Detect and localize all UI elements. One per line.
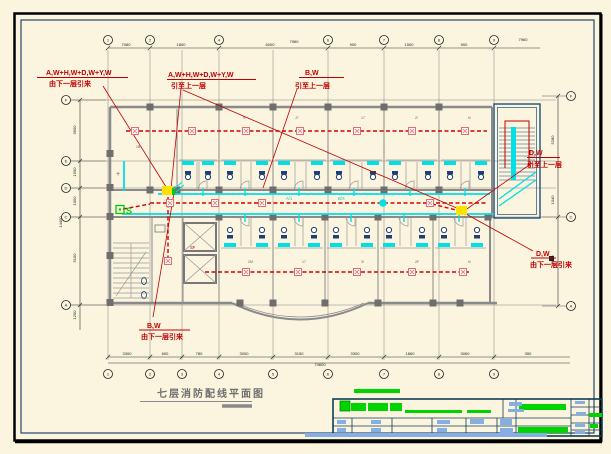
- sink: [308, 243, 320, 247]
- toilet-tank: [185, 171, 191, 175]
- toilet: [333, 227, 338, 232]
- sink: [367, 161, 379, 165]
- room-label: 3!: [361, 260, 364, 264]
- toilet: [205, 174, 210, 179]
- sink: [224, 161, 236, 165]
- dim-text: 2640: [550, 255, 555, 265]
- column: [430, 300, 437, 307]
- toilet: [441, 227, 446, 232]
- dim-text: 900: [350, 42, 357, 47]
- title-block-green-bar: [518, 427, 568, 433]
- title-block-blue-bar: [576, 412, 586, 415]
- cad-sheet: S A,W+H,W+D,W+Y,W 由下一层引来 A,W+H,W+D,W+Y,W…: [0, 0, 611, 454]
- column: [216, 187, 223, 194]
- sink: [330, 243, 342, 247]
- toilet: [259, 227, 264, 232]
- sink: [202, 161, 214, 165]
- title-block-blue-bar: [575, 401, 585, 404]
- column: [107, 184, 114, 191]
- title-block-blue-bar: [508, 409, 524, 412]
- toilet: [314, 174, 319, 179]
- wire-label-1: A/1: [286, 196, 293, 201]
- dim-total: 7960: [290, 39, 300, 44]
- room-label: 2M: [248, 260, 253, 264]
- axis-bubble-label: E: [65, 159, 68, 164]
- sink: [383, 243, 395, 247]
- title-block-blue-bar: [437, 428, 447, 432]
- annotation-4-line2: 引至上一层: [527, 160, 562, 169]
- column: [237, 300, 244, 307]
- dim-text: 1050: [72, 196, 77, 206]
- sink: [256, 161, 268, 165]
- guest-rooms: [179, 160, 490, 248]
- toilet: [386, 227, 391, 232]
- dim-text: 7080: [122, 42, 132, 47]
- toilet-tank: [336, 171, 342, 175]
- column: [381, 104, 388, 111]
- annotation-3-line2: 引至上一层: [295, 81, 330, 90]
- column: [107, 213, 114, 220]
- title-block-green-bar: [589, 413, 602, 417]
- title-block-blue-bar: [575, 424, 585, 427]
- title-block-green-bar: [340, 401, 350, 411]
- annotation-3-line1: B,W: [305, 70, 319, 77]
- floor-plan-drawing: S A,W+H,W+D,W+Y,W 由下一层引来 A,W+H,W+D,W+Y,W…: [0, 0, 611, 454]
- dim-total: 7960: [519, 37, 529, 42]
- sink: [361, 243, 373, 247]
- room-label: 1B: [136, 145, 141, 149]
- toilet: [474, 227, 479, 232]
- annotation-1-line1: A,W+H,W+D,W+Y,W: [46, 70, 112, 77]
- toilet-tank: [478, 171, 484, 175]
- dim-text: 780: [196, 351, 203, 356]
- dim-text: 1500: [405, 42, 415, 47]
- toilet: [281, 174, 286, 179]
- title-block-blue-bar: [500, 428, 513, 433]
- annotation-5-line1: D,W: [536, 251, 550, 258]
- title-block-blue-bar: [305, 433, 547, 437]
- sink: [278, 243, 290, 247]
- toilet: [447, 174, 452, 179]
- column: [270, 104, 277, 111]
- toilet-tank: [447, 171, 453, 175]
- toilet-tank: [227, 171, 233, 175]
- axis-bubble-label: D: [65, 186, 68, 191]
- dim-text: 3300: [351, 351, 361, 356]
- axis-bubble-label: A: [570, 304, 573, 309]
- riser-pipe: [511, 127, 516, 180]
- toilet-tank: [227, 235, 233, 239]
- sink: [471, 243, 483, 247]
- title-block-blue-bar: [371, 428, 381, 432]
- toilet-tank: [386, 235, 392, 239]
- toilet: [336, 174, 341, 179]
- sink: [311, 161, 323, 165]
- toilet-tank: [392, 171, 398, 175]
- axis-bubble-label: C: [65, 215, 68, 220]
- dim-text: 1200: [72, 310, 77, 320]
- column: [322, 300, 329, 307]
- column: [375, 300, 382, 307]
- title-block-green-bar: [467, 410, 491, 413]
- room-label: 17: [302, 260, 306, 264]
- dim-text: 5100: [72, 253, 77, 263]
- sink: [182, 161, 194, 165]
- stair-cyan-flow: [499, 172, 536, 206]
- annotation-6-line1: B,W: [147, 323, 161, 330]
- title-block-blue-bar: [371, 420, 381, 424]
- wire-label-3: SF: [190, 245, 196, 250]
- dim-total: 14400: [58, 216, 63, 228]
- column: [270, 300, 277, 307]
- dim-text: 5280: [550, 135, 555, 145]
- column: [457, 300, 464, 307]
- sink: [475, 161, 487, 165]
- toilet: [259, 174, 264, 179]
- dim-text: 3060: [461, 351, 471, 356]
- annotation-4-line1: D,W: [529, 150, 543, 157]
- toilet-tank: [259, 171, 265, 175]
- title-block-content: [305, 389, 602, 437]
- dim-total: 74600: [314, 362, 326, 367]
- drawing-title: 七层消防配线平面图: [157, 387, 265, 400]
- junction-box-1: [162, 186, 173, 195]
- sink: [256, 243, 268, 247]
- title-block-blue-bar: [509, 402, 522, 406]
- column: [325, 187, 332, 194]
- column: [325, 104, 332, 111]
- toilet-tank: [281, 171, 287, 175]
- dim-text: 350: [525, 351, 532, 356]
- title-block-blue-bar: [337, 428, 346, 432]
- toilet-tank: [425, 171, 431, 175]
- title-block-blue-bar: [575, 431, 585, 434]
- toilet-tank: [419, 235, 425, 239]
- junction-box-2: [456, 206, 467, 215]
- elevator-shafts: [184, 223, 216, 283]
- sink: [224, 243, 236, 247]
- axis-bubble-label: A: [65, 303, 68, 308]
- title-block-blue-bar: [337, 420, 346, 424]
- dim-text: 3300: [123, 351, 133, 356]
- title-block-green-bar: [405, 410, 462, 413]
- room-label: N: [468, 116, 471, 120]
- toilet-tank: [441, 235, 447, 239]
- dim-text: 1800: [177, 42, 187, 47]
- room-label: N: [468, 260, 471, 264]
- room-label: +: [116, 171, 120, 178]
- pipe-node: [379, 199, 387, 207]
- sink: [333, 161, 345, 165]
- toilet: [419, 227, 424, 232]
- toilet-tank: [333, 235, 339, 239]
- toilet: [425, 174, 430, 179]
- toilet: [370, 174, 375, 179]
- room-label: J7: [295, 116, 299, 120]
- toilet: [311, 227, 316, 232]
- room-label: 2F: [415, 260, 419, 264]
- dim-text: 1040: [550, 195, 555, 205]
- dim-text: 900: [461, 42, 468, 47]
- title-block-blue-bar: [470, 419, 484, 424]
- toilet: [227, 174, 232, 179]
- sink: [416, 243, 428, 247]
- annotation-2-line1: A,W+H,W+D,W+Y,W: [168, 72, 234, 79]
- title-block-green-bar: [390, 403, 402, 411]
- column: [270, 187, 277, 194]
- column: [436, 104, 443, 111]
- toilet: [227, 227, 232, 232]
- dim-text: 3150: [295, 351, 305, 356]
- sounder-symbol: S: [126, 206, 132, 216]
- lobby-fixtures: [142, 225, 166, 299]
- wire-label-2: B/X: [338, 196, 345, 201]
- toilet: [185, 174, 190, 179]
- column: [381, 187, 388, 194]
- stair-left: [113, 243, 149, 298]
- column: [147, 104, 154, 111]
- toilet-tank: [474, 235, 480, 239]
- title-block-green-bar: [354, 389, 400, 393]
- sink: [422, 161, 434, 165]
- annotation-6-line2: 由下一层引来: [141, 332, 184, 341]
- column: [107, 150, 114, 157]
- column: [107, 252, 114, 259]
- toilet: [392, 174, 397, 179]
- toilet-tank: [311, 235, 317, 239]
- call-point-dot: [119, 208, 121, 210]
- title-block-green-bar: [351, 403, 366, 411]
- axis-bubble-label: C: [570, 215, 573, 220]
- dim-text: 6000: [266, 42, 276, 47]
- column: [147, 187, 154, 194]
- room-label: 17: [361, 116, 365, 120]
- title-block-green-bar: [519, 404, 566, 410]
- toilet-tank: [205, 171, 211, 175]
- dim-text: 1860: [406, 351, 416, 356]
- annotation-1-line2: 由下一层引来: [49, 79, 92, 88]
- toilet-tank: [259, 235, 265, 239]
- toilet-tank: [364, 235, 370, 239]
- toilet-tank: [314, 171, 320, 175]
- sink: [438, 243, 450, 247]
- room-label: 2!: [415, 116, 418, 120]
- title-block-green-bar: [590, 424, 598, 428]
- column: [107, 299, 114, 306]
- toilet: [281, 227, 286, 232]
- sink: [389, 161, 401, 165]
- title-block-green-bar: [368, 403, 388, 411]
- sink: [444, 161, 456, 165]
- toilet-tank: [281, 235, 287, 239]
- dim-text: 3000: [240, 351, 250, 356]
- title-block-blue-bar: [500, 419, 512, 425]
- toilet: [364, 227, 369, 232]
- drawing-title-group: 七层消防配线平面图: [140, 387, 265, 406]
- annotation-2-line2: 引至上一层: [171, 81, 206, 90]
- sink: [278, 161, 290, 165]
- dim-text: 1500: [72, 167, 77, 177]
- title-block-blue-bar: [437, 420, 450, 424]
- dim-text: 3600: [72, 125, 77, 135]
- toilet: [478, 174, 483, 179]
- dim-text: 600: [162, 351, 169, 356]
- column: [436, 187, 443, 194]
